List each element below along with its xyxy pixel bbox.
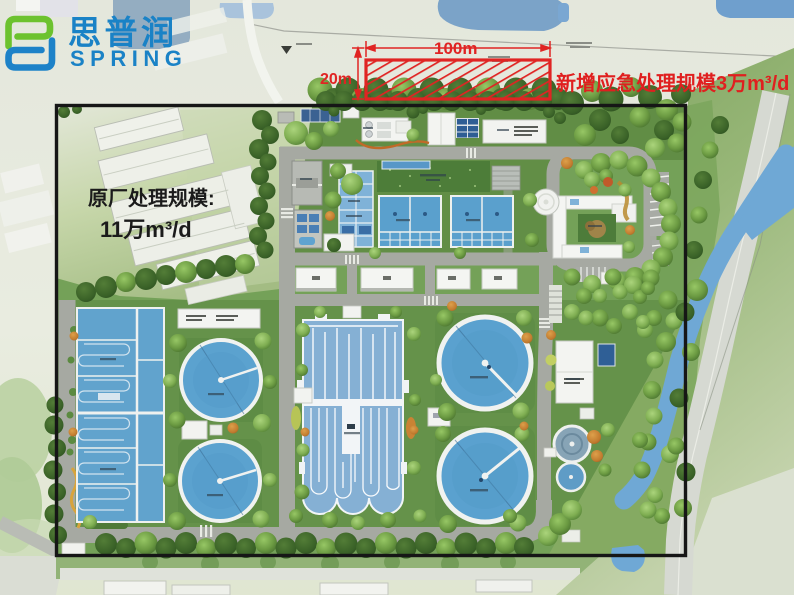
svg-text:100m: 100m: [434, 39, 477, 58]
svg-text:新增应急处理规模3万m³/d: 新增应急处理规模3万m³/d: [556, 71, 789, 95]
svg-text:SPRING: SPRING: [70, 46, 187, 71]
svg-text:20m: 20m: [320, 71, 352, 88]
svg-text:原厂处理规模:: 原厂处理规模:: [88, 186, 215, 210]
svg-text:11万m³/d: 11万m³/d: [100, 217, 192, 242]
